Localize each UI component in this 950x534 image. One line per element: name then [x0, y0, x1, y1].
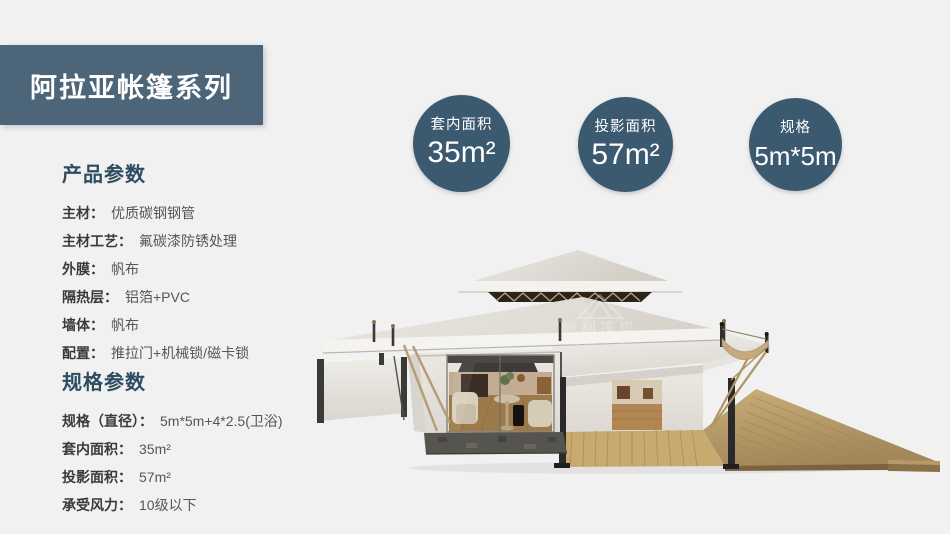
series-title: 阿拉亚帐篷系列 [30, 66, 233, 105]
badge-projection-area: 投影面积 57m² [578, 97, 673, 192]
param-value: 氟碳漆防锈处理 [139, 231, 237, 251]
badge-label: 投影面积 [578, 115, 673, 136]
spec-label: 投影面积： [62, 467, 132, 487]
deck-step [888, 460, 940, 472]
param-label: 外膜： [62, 259, 104, 279]
param-row: 主材： 优质碳钢钢管 [62, 199, 382, 227]
spec-value: 5m*5m+4*2.5(卫浴) [160, 411, 283, 431]
badge-value: 57 [591, 138, 624, 171]
param-label: 墙体： [62, 315, 104, 335]
param-label: 主材工艺： [62, 231, 132, 251]
param-value: 帆布 [111, 259, 139, 279]
series-title-banner: 阿拉亚帐篷系列 [0, 45, 263, 125]
door-opening [612, 380, 662, 430]
param-label: 主材： [62, 203, 104, 223]
wood-deck [703, 389, 940, 472]
param-value: 帆布 [111, 315, 139, 335]
badge-size: 规格 5m*5m [749, 98, 842, 191]
porch-floor [560, 430, 725, 467]
badge-unit: m² [461, 136, 496, 169]
watermark-text-en: WELL TENT [566, 338, 635, 347]
spec-value: 35m² [139, 441, 171, 457]
stone-base [424, 432, 567, 454]
param-value: 铝箔+PVC [125, 287, 190, 307]
spec-value: 57m² [139, 469, 171, 485]
section-title-product: 产品参数 [62, 158, 382, 187]
fence-post-left [317, 359, 324, 423]
window [447, 355, 554, 432]
param-label: 隔热层： [62, 287, 118, 307]
spec-label: 套内面积： [62, 439, 132, 459]
badge-label: 套内面积 [413, 113, 510, 134]
interior-desk [617, 386, 630, 399]
param-value: 推拉门+机械锁/磁卡锁 [111, 343, 249, 363]
badge-value: 35 [427, 136, 460, 169]
side-fence [317, 353, 407, 423]
badge-value: 5m*5m [754, 141, 836, 171]
watermark-text-cn: 帐利篷房 [562, 319, 638, 337]
product-sheet-page: 阿拉亚帐篷系列 产品参数 主材： 优质碳钢钢管 主材工艺： 氟碳漆防锈处理 外膜… [0, 0, 950, 534]
spec-label: 规格（直径）： [62, 411, 153, 431]
badge-label: 规格 [749, 116, 842, 137]
interior-chair [643, 388, 653, 399]
badge-inner-area: 套内面积 35m² [413, 95, 510, 192]
interior-bag [513, 405, 524, 426]
param-value: 优质碳钢钢管 [111, 203, 195, 223]
interior-armchair-right [528, 400, 552, 427]
badge-unit: m² [625, 138, 660, 171]
spec-label: 承受风力： [62, 495, 132, 515]
tent-photo-illustration: 帐利篷房 WELL TENT [315, 225, 950, 530]
spec-value: 10级以下 [139, 495, 197, 515]
param-label: 配置： [62, 343, 104, 363]
cupola-roof [458, 250, 682, 302]
